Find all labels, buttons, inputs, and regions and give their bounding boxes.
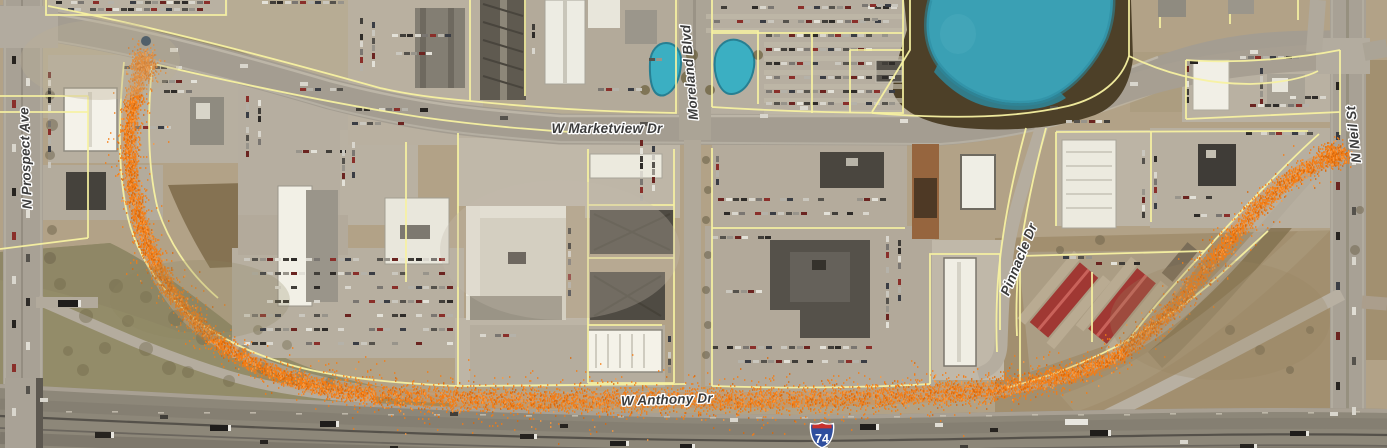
svg-text:74: 74 — [815, 432, 829, 446]
svg-text:W Marketview Dr: W Marketview Dr — [551, 121, 663, 136]
